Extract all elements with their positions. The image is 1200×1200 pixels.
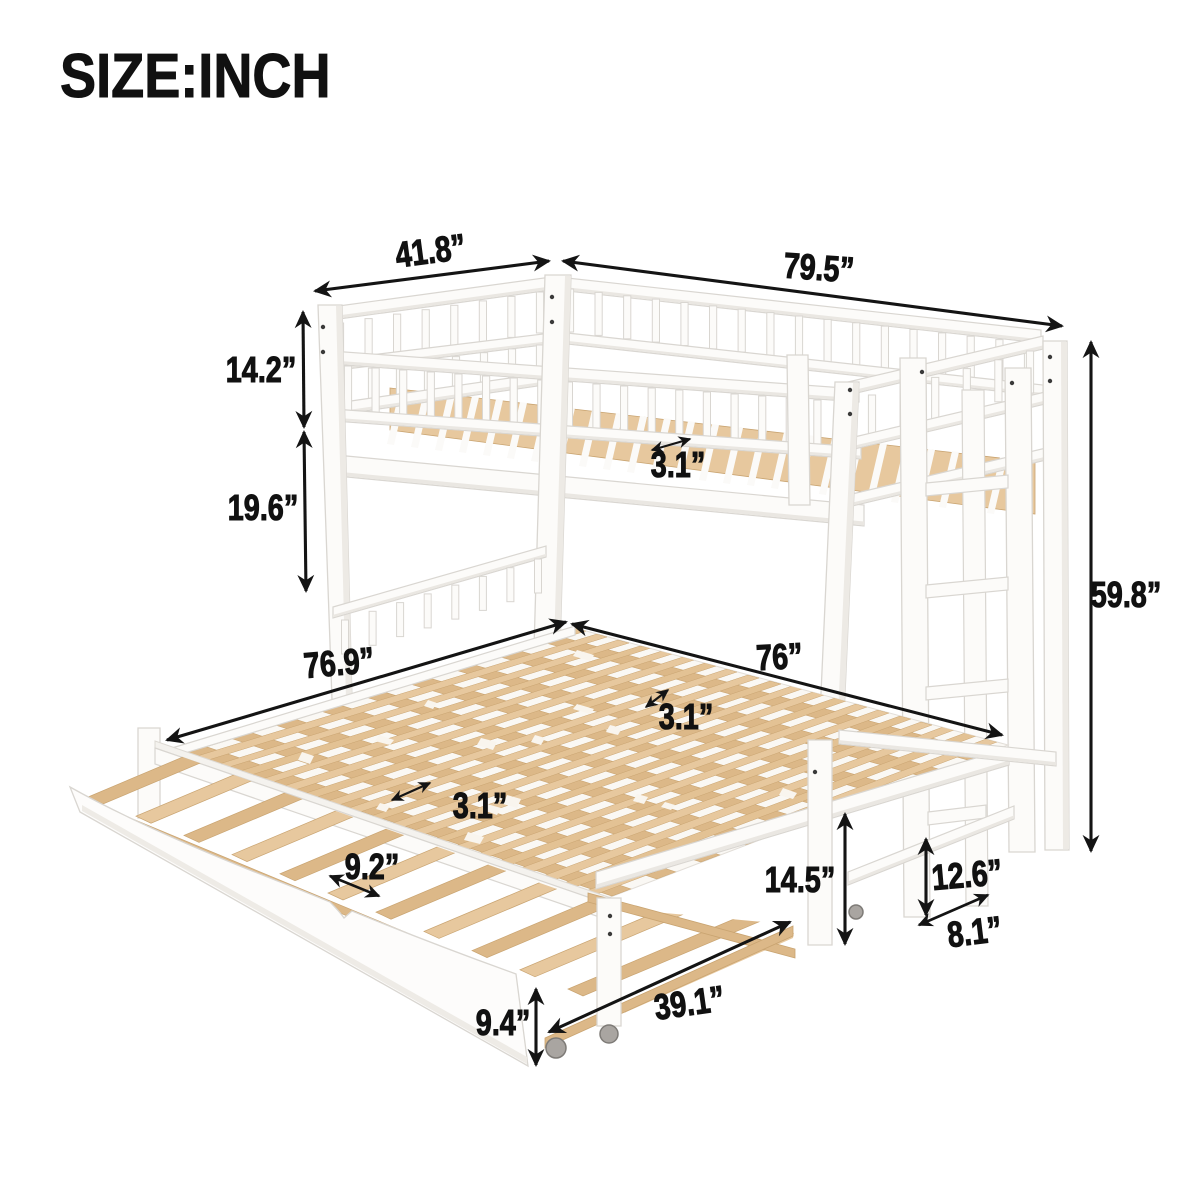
svg-text:14.2”: 14.2” bbox=[226, 349, 296, 390]
svg-text:9.4”: 9.4” bbox=[476, 1002, 530, 1043]
svg-text:76.9”: 76.9” bbox=[302, 639, 376, 686]
svg-text:19.6”: 19.6” bbox=[228, 487, 298, 528]
svg-text:12.6”: 12.6” bbox=[930, 851, 1004, 898]
svg-text:8.1”: 8.1” bbox=[945, 908, 1004, 955]
svg-text:3.1”: 3.1” bbox=[651, 444, 705, 485]
svg-text:9.2”: 9.2” bbox=[345, 846, 399, 887]
svg-text:3.1”: 3.1” bbox=[453, 785, 507, 826]
svg-text:76”: 76” bbox=[755, 635, 803, 678]
svg-text:14.5”: 14.5” bbox=[765, 859, 835, 900]
svg-text:SIZE:INCH: SIZE:INCH bbox=[60, 42, 331, 111]
svg-text:59.8”: 59.8” bbox=[1091, 574, 1161, 615]
svg-text:79.5”: 79.5” bbox=[782, 244, 855, 290]
svg-text:3.1”: 3.1” bbox=[659, 696, 713, 737]
